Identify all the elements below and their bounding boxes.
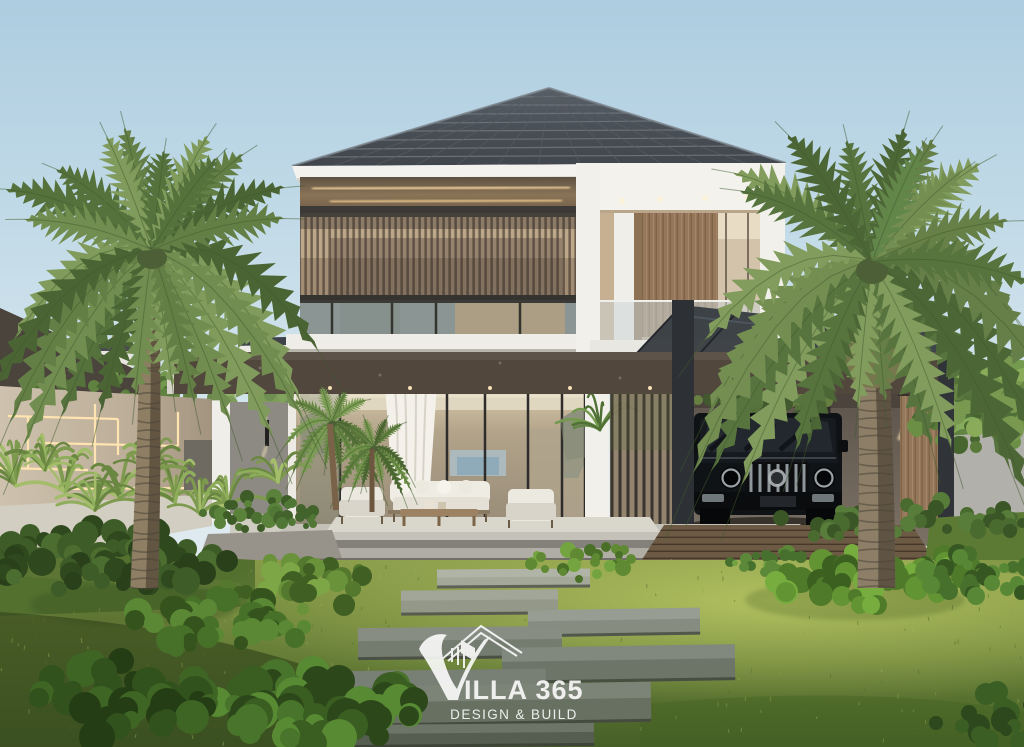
svg-text:ILLA 365: ILLA 365 bbox=[464, 675, 584, 705]
svg-text:DESIGN & BUILD: DESIGN & BUILD bbox=[450, 707, 578, 722]
